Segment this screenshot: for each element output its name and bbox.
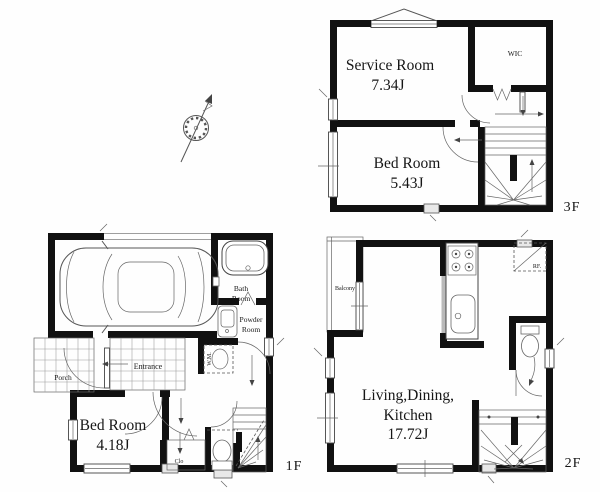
floor-label-1f: 1F	[286, 459, 303, 474]
room-bed-room-1f: Bed Room 4.18J	[80, 417, 147, 454]
floor-label-2f: 2F	[565, 456, 582, 471]
room-label: Powder	[240, 315, 263, 324]
kitchen-counter	[446, 243, 478, 339]
room-ldk: Living,Dining, Kitchen 17.72J	[362, 387, 454, 443]
powder-room: Powder Room	[218, 306, 270, 386]
room-area: 5.43J	[390, 175, 423, 192]
room-label: Kitchen	[383, 407, 432, 424]
toilet-icon	[516, 326, 542, 396]
room-area: 7.34J	[371, 77, 404, 94]
winder-stairs-icon	[479, 410, 546, 472]
room-label: Room	[232, 294, 251, 303]
room-label: Bed Room	[80, 417, 147, 434]
porch-label: Porch	[54, 373, 72, 382]
roof-vent-icon	[371, 9, 437, 28]
room-label: Service Room	[346, 57, 434, 74]
room-label: Bath	[234, 284, 248, 293]
door-swing	[443, 89, 544, 162]
refrigerator-label: RF.	[533, 264, 542, 270]
entrance-tiles: Entrance	[102, 338, 185, 390]
car-icon	[60, 241, 218, 333]
balcony-label: Balcony	[335, 286, 355, 292]
room-area: 17.72J	[388, 426, 429, 443]
bathtub-icon	[222, 241, 268, 275]
room-wic-label: WIC	[508, 49, 523, 58]
room-area: 4.18J	[96, 437, 129, 454]
floor-plan-canvas: Service Room 7.34J WIC Bed Room 5.43J 3F…	[0, 0, 600, 492]
floor-plan-3f: Service Room 7.34J WIC Bed Room 5.43J 3F	[320, 2, 590, 218]
entrance-label: Entrance	[134, 362, 163, 371]
room-service-room: Service Room 7.34J	[346, 57, 434, 94]
closet-label: Clo	[175, 459, 184, 465]
winder-stairs-icon	[485, 127, 546, 205]
room-label: Living,Dining,	[362, 387, 454, 404]
floor-label-3f: 3F	[564, 200, 581, 215]
compass-icon	[165, 85, 235, 175]
floor-plan-2f: Balcony	[318, 228, 590, 486]
floor-plan-1f: Bath Room Powder Room W.M.	[30, 228, 310, 490]
room-label: Bed Room	[374, 155, 441, 172]
vanity-sink-icon	[218, 306, 237, 337]
washing-machine-icon: W.M.	[204, 345, 233, 373]
room-label: Room	[242, 325, 261, 334]
washing-machine-label: W.M.	[207, 352, 213, 366]
kitchen-sink-icon	[451, 295, 475, 333]
walls-2f	[327, 240, 553, 472]
room-bed-room-3f: Bed Room 5.43J	[374, 155, 441, 192]
porch-tiles: Porch	[34, 338, 94, 392]
bath-room: Bath Room	[213, 241, 268, 305]
